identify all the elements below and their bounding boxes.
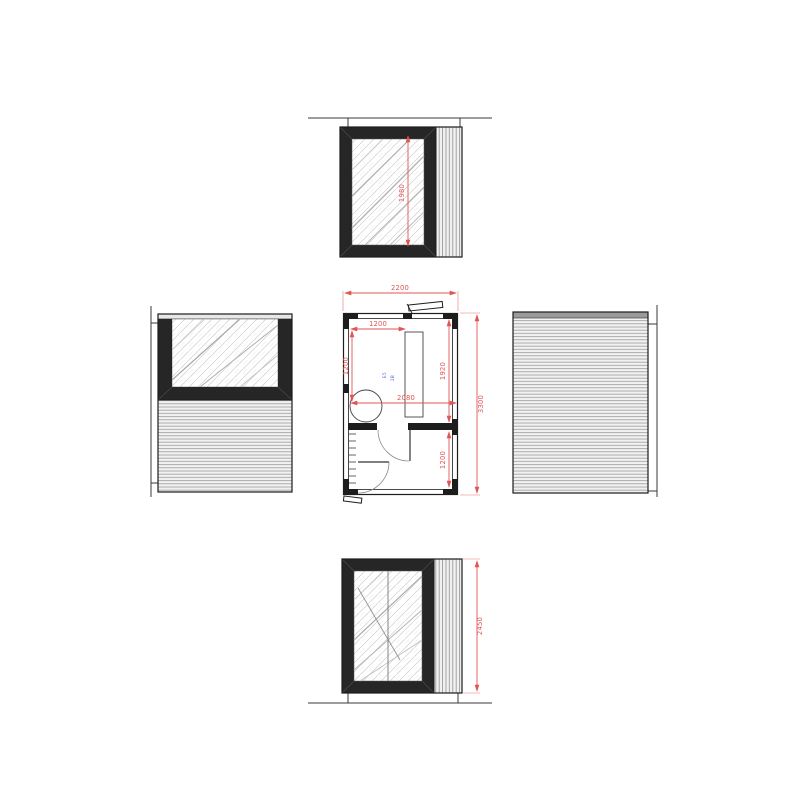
fold-tick	[151, 323, 158, 483]
room-annotation-line1: E5	[382, 372, 387, 378]
drawing-canvas: 1980	[0, 0, 800, 800]
fold-tick	[348, 693, 458, 703]
orthographic-drawing: 1980	[0, 0, 800, 800]
fold-tick	[648, 324, 657, 491]
dim-label-1920: 1920	[439, 362, 447, 380]
right-elevation	[513, 312, 648, 493]
entry-door-flap	[343, 496, 361, 503]
open-window-sash	[408, 301, 442, 311]
siding-lower	[158, 400, 292, 492]
floor-plan: E5 2B 2200 3300 1920 1200 1200 1200 2080	[342, 284, 485, 503]
roof-edge	[158, 314, 292, 319]
dimension-elevation-height: 2450	[462, 559, 484, 693]
dim-label-2200: 2200	[391, 284, 409, 292]
dim-label-2080: 2080	[397, 394, 415, 402]
bottom-elevation: 2450	[342, 559, 484, 693]
counter-furniture	[405, 332, 423, 417]
basin-table	[350, 390, 382, 422]
siding-panel	[434, 559, 462, 693]
siding-panel	[436, 127, 462, 257]
dim-label-1200-lower: 1200	[439, 451, 447, 469]
top-elevation: 1980	[340, 127, 462, 257]
dim-label-1980: 1980	[398, 184, 406, 202]
room-annotation-line2: 2B	[390, 375, 395, 381]
dim-label-1200-top: 1200	[369, 320, 387, 328]
left-elevation	[158, 314, 292, 492]
siding-face	[513, 318, 648, 493]
dim-label-3300: 3300	[477, 395, 485, 413]
dim-label-2450: 2450	[476, 617, 484, 635]
glass-pane	[172, 319, 278, 387]
roof-edge	[513, 312, 648, 318]
dim-label-1200-left: 1200	[342, 357, 350, 375]
